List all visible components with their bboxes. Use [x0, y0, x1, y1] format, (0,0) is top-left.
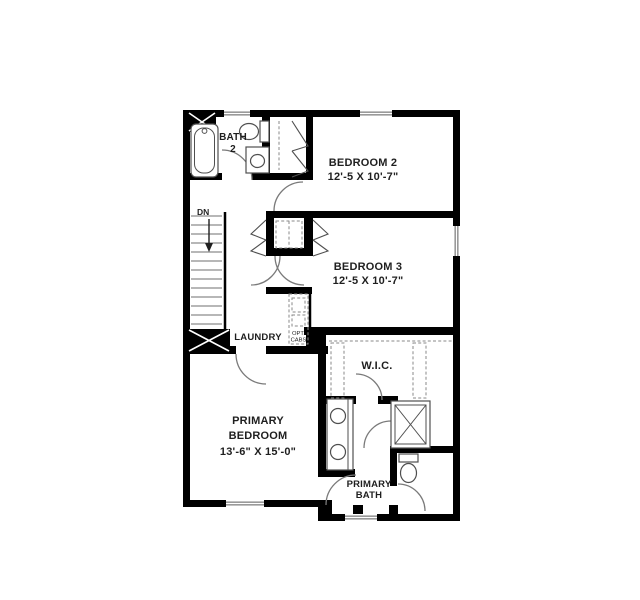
bedroom3-label: BEDROOM 3 [334, 261, 402, 273]
stairs [191, 216, 222, 332]
bedroom2-closet-bifold [292, 121, 308, 177]
wic-label: W.I.C. [361, 360, 392, 372]
toilet-room-door [398, 484, 425, 511]
double-vanity [327, 399, 353, 470]
chase-under-stairs [188, 329, 230, 352]
window-bottom-primary-bedroom [226, 500, 264, 507]
window-top-bath2 [224, 110, 250, 117]
primary-bath-fixtures [327, 399, 430, 483]
window-top-bedroom2 [360, 110, 392, 117]
bath2-label-2: 2 [230, 144, 236, 155]
bath2-vanity-sink [246, 147, 269, 173]
room-labels: BATH 2 BEDROOM 2 12'-5 X 10'-7" BEDROOM … [197, 132, 403, 501]
window-right-bedroom3 [453, 226, 460, 256]
bedroom2-dims: 12'-5 X 10'-7" [328, 171, 399, 183]
stair-treads [191, 216, 222, 332]
wic-shelf-left [331, 343, 344, 398]
primary-bedroom-dims: 13'-6" X 15'-0" [220, 446, 296, 458]
bedroom2-door [274, 182, 303, 211]
bath2-label-1: BATH [219, 132, 247, 143]
floorplan-drawing: OPT. CABS [0, 0, 640, 600]
window-bottom-primary-bath [345, 514, 377, 521]
bedroom2-label: BEDROOM 2 [329, 157, 397, 169]
primary-bedroom-door [236, 354, 266, 384]
opt-cabs-label-1: OPT. [292, 331, 305, 337]
shower [391, 401, 430, 448]
hall-closet-bifold [251, 220, 266, 256]
bedroom3-closet-bifold [313, 220, 328, 256]
bathtub [191, 124, 218, 177]
stairs-dn-label: DN [197, 207, 209, 217]
laundry-label: LAUNDRY [234, 332, 282, 343]
optional-cabinets: OPT. CABS [289, 294, 308, 344]
primary-bedroom-label-2: BEDROOM [229, 430, 288, 442]
primary-bath-label-2: BATH [356, 490, 382, 501]
toilet-primary [399, 454, 418, 483]
shower-door [364, 421, 391, 448]
bedroom3-dims: 12'-5 X 10'-7" [333, 275, 404, 287]
dn-arrow-icon [205, 219, 213, 252]
primary-bath-label-1: PRIMARY [347, 479, 392, 490]
opt-cabs-label-2: CABS [291, 338, 307, 344]
wic-shelf-right [413, 343, 426, 398]
floorplan-page: OPT. CABS [0, 0, 640, 600]
primary-bedroom-label-1: PRIMARY [232, 415, 284, 427]
